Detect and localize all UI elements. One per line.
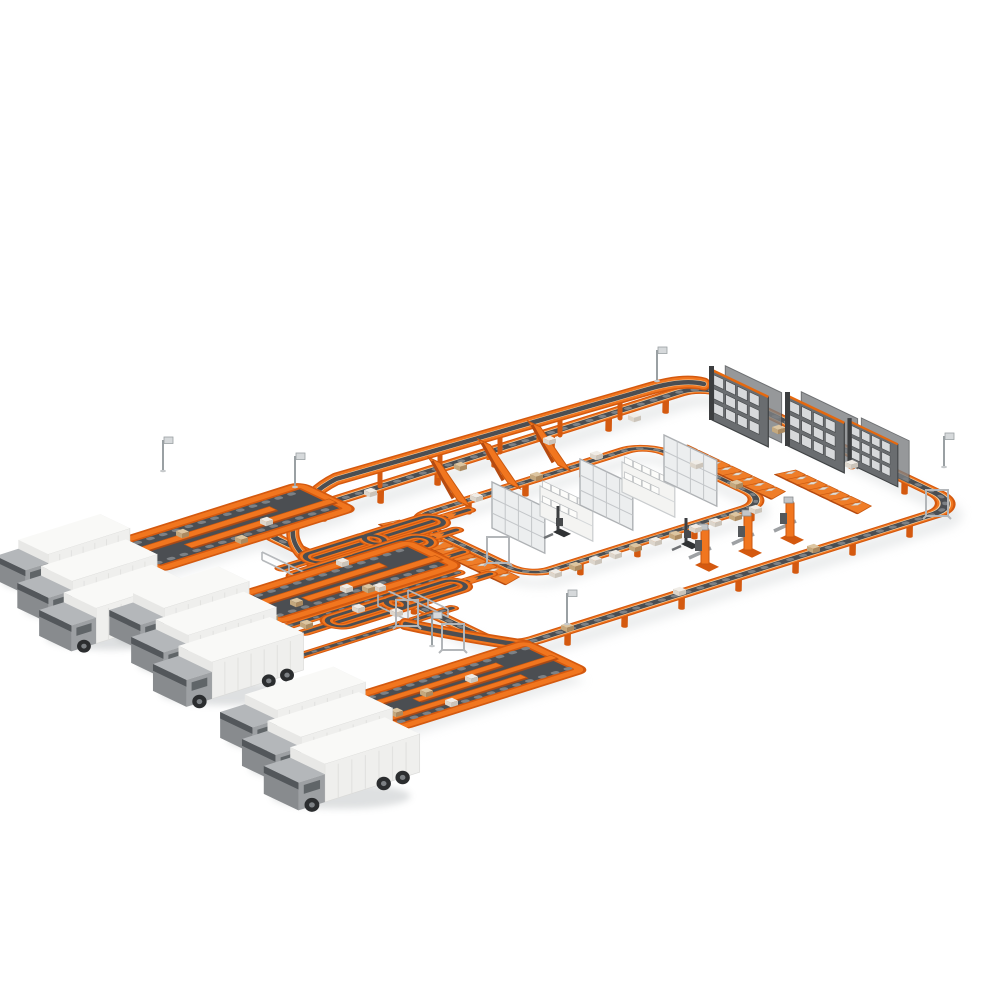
asrs-rack-block: [785, 392, 858, 473]
warehouse-sortation-illustration: [0, 0, 1000, 1000]
illustration-canvas: [0, 0, 1000, 1000]
sign-post: [654, 347, 667, 382]
asrs-rack-block: [709, 366, 782, 447]
sign-post: [292, 453, 305, 488]
sign-post: [564, 590, 577, 625]
sign-post: [160, 437, 173, 472]
asrs-rack-block: [847, 418, 909, 487]
lift-station: [774, 497, 804, 545]
sign-post: [941, 433, 954, 468]
